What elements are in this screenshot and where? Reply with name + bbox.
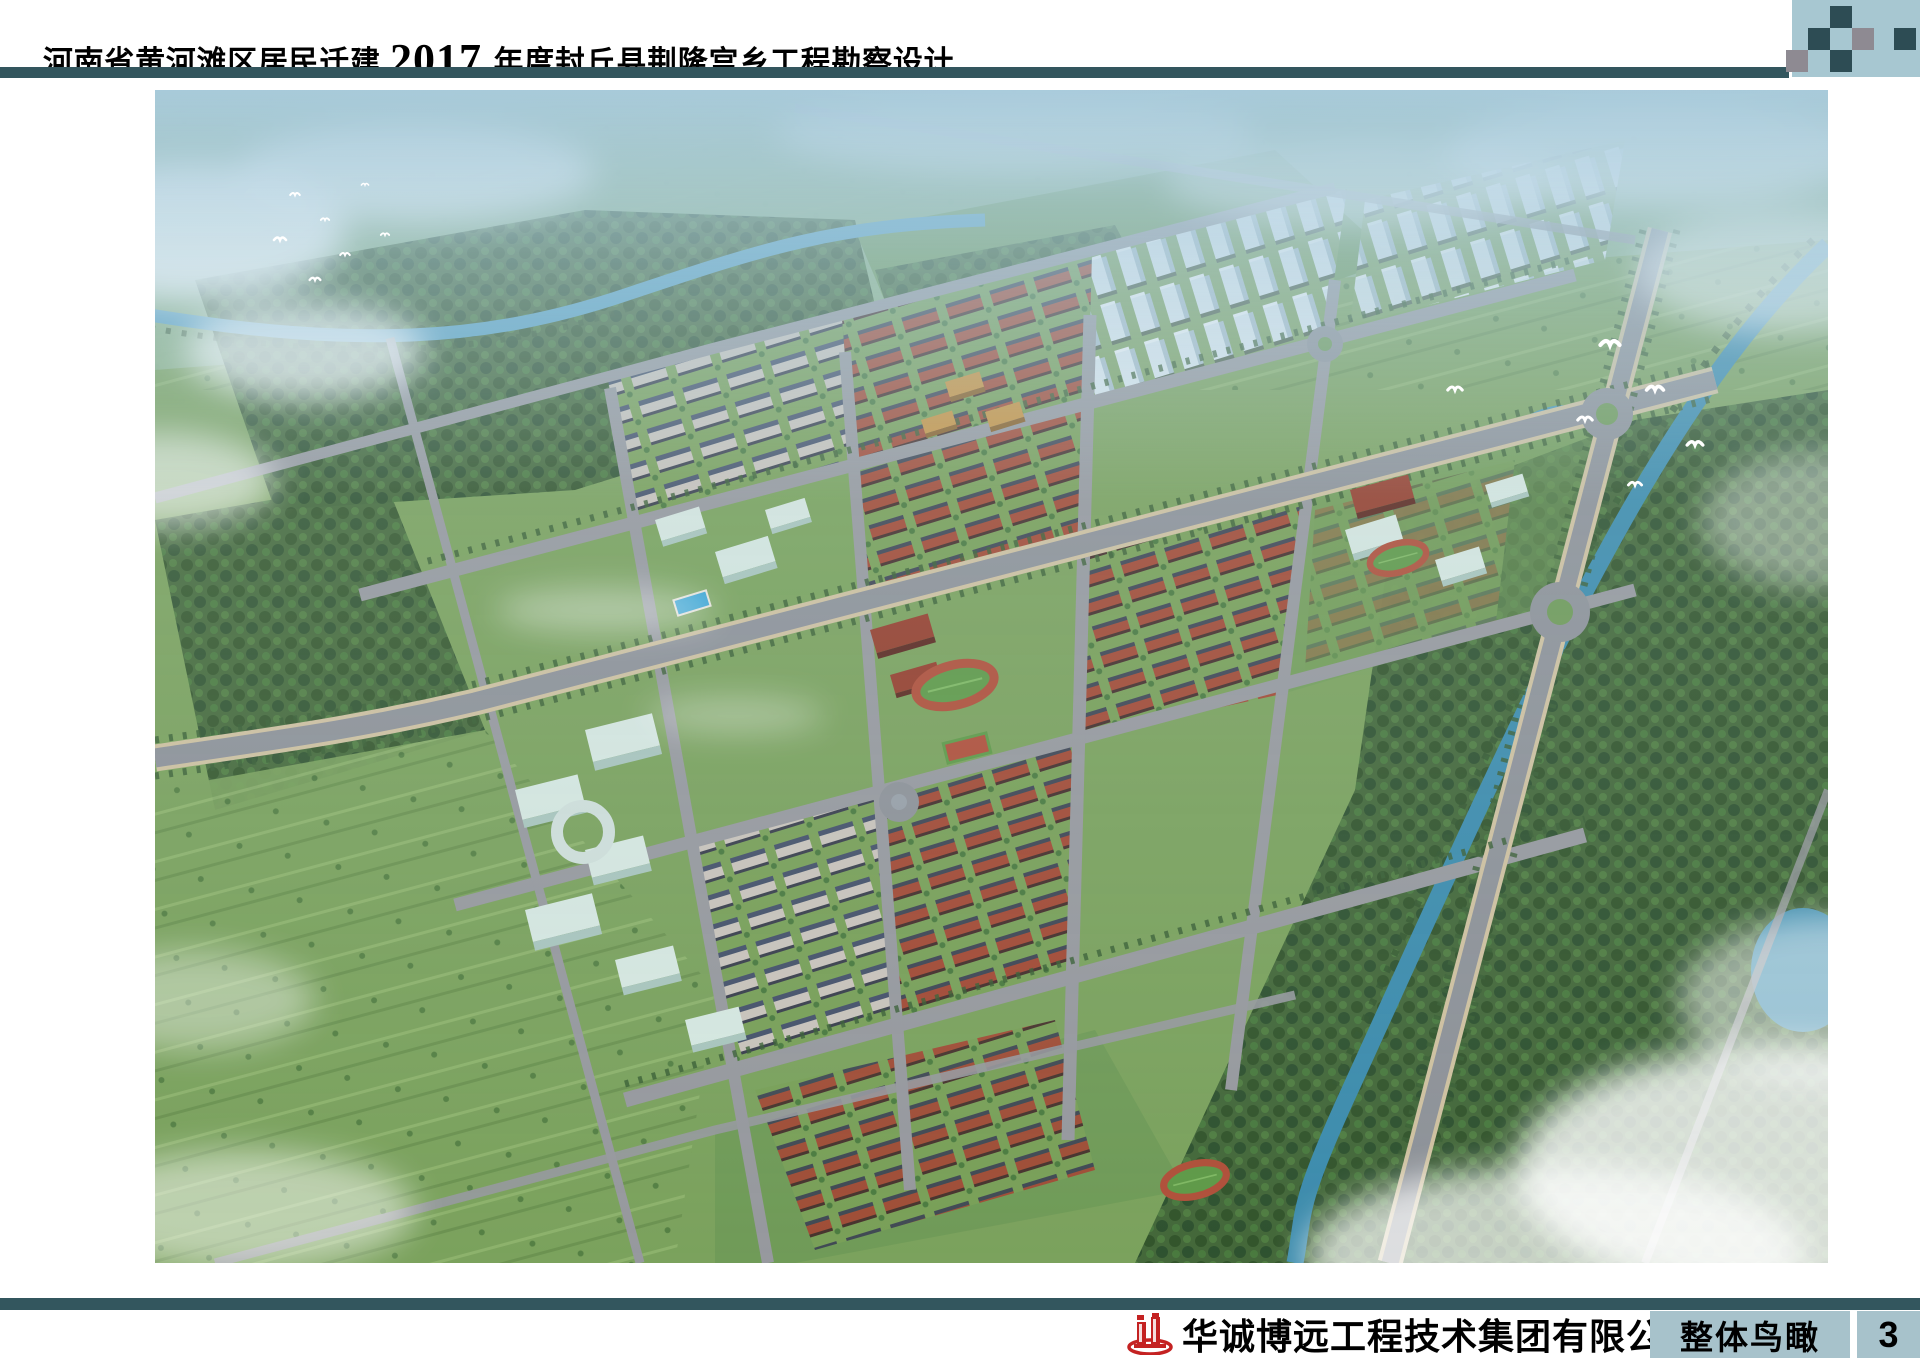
page-title: 河南省黄河滩区居民迁建2017年度封丘县荆隆宫乡工程勘察设计 [36, 31, 964, 87]
atmosphere-haze [155, 90, 1828, 1263]
corner-square-icon [1894, 28, 1916, 50]
corner-square-icon [1786, 50, 1808, 72]
aerial-render-canvas [155, 90, 1828, 1263]
header-divider-bar [0, 67, 1789, 78]
corner-square-icon [1830, 6, 1852, 28]
corner-square-icon [1852, 28, 1874, 50]
presentation-slide: 河南省黄河滩区居民迁建2017年度封丘县荆隆宫乡工程勘察设计 [0, 0, 1920, 1358]
aerial-render-image [155, 90, 1828, 1263]
company-name: 华诚博远工程技术集团有限公司 [1182, 1310, 1700, 1358]
corner-square-icon [1808, 28, 1830, 50]
section-label: 整体鸟瞰 [1650, 1311, 1850, 1358]
footer-label-box: 整体鸟瞰 3 [1650, 1311, 1920, 1358]
corner-square-icon [1830, 50, 1852, 72]
company-logo-icon [1126, 1313, 1174, 1355]
page-number: 3 [1857, 1311, 1920, 1358]
label-separator [1850, 1311, 1857, 1358]
